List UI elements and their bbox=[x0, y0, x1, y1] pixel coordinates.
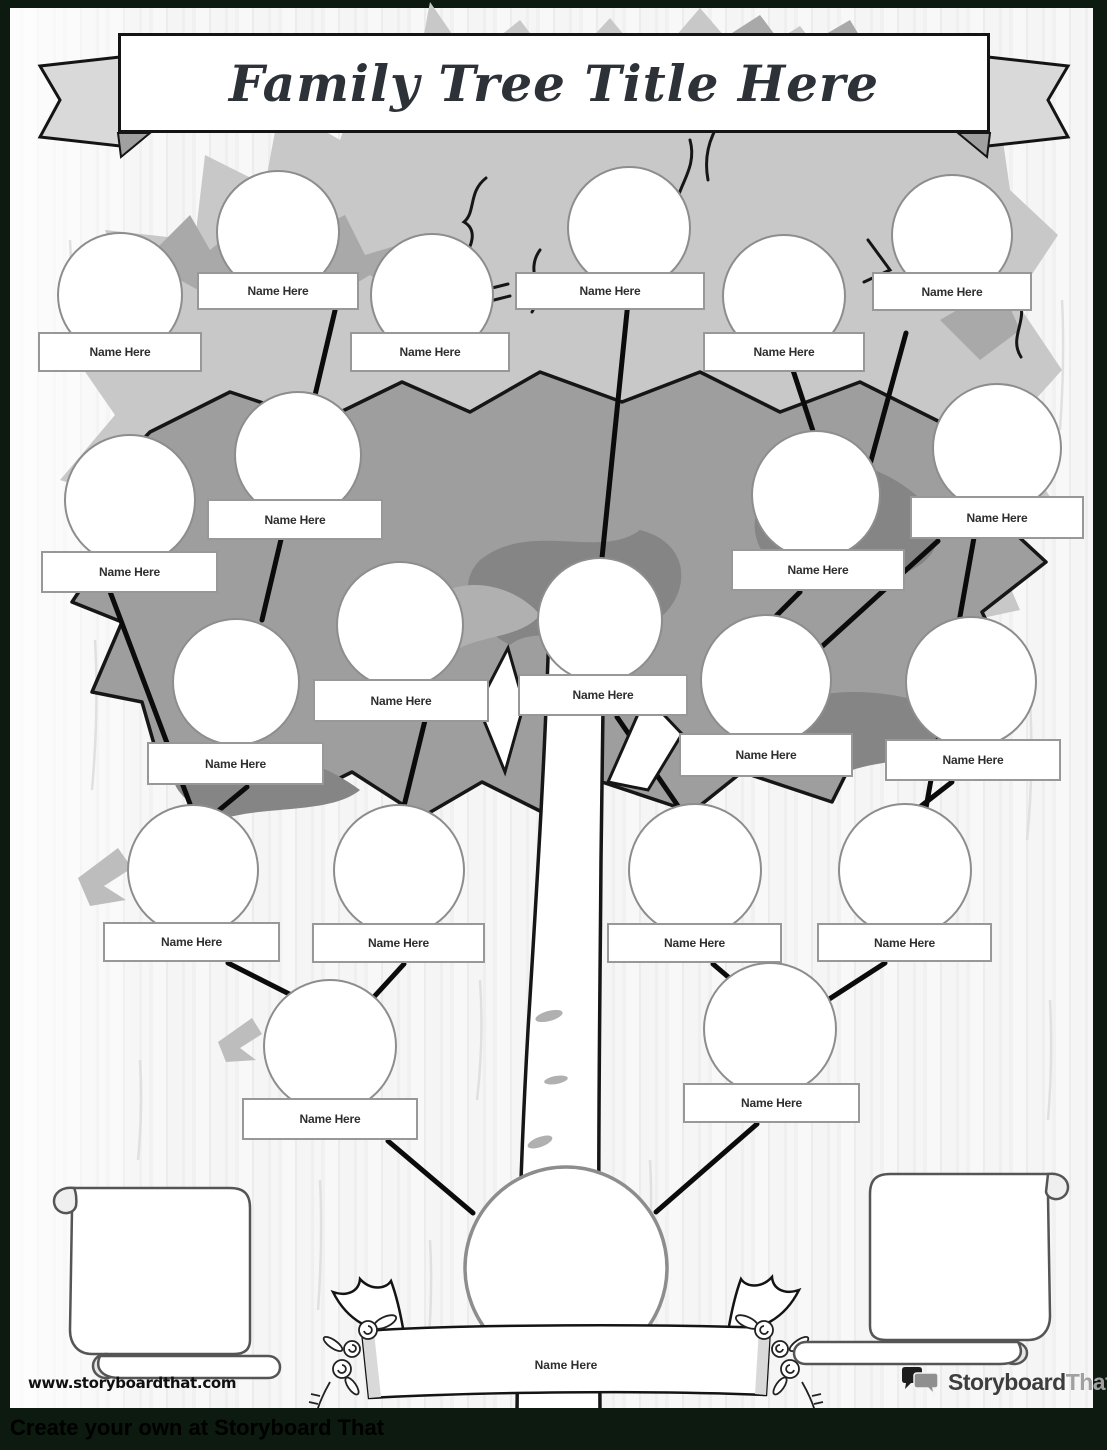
member-name-label[interactable]: Name Here bbox=[683, 1083, 860, 1123]
member-photo-circle[interactable] bbox=[64, 434, 196, 566]
member-name-label[interactable]: Name Here bbox=[872, 272, 1032, 311]
member-name-label[interactable]: Name Here bbox=[731, 549, 905, 591]
bottom-promo-text: Create your own at Storyboard That bbox=[10, 1415, 1107, 1441]
member-photo-circle[interactable] bbox=[537, 557, 663, 683]
member-photo-circle[interactable] bbox=[751, 430, 881, 560]
member-name-label[interactable]: Name Here bbox=[242, 1098, 418, 1140]
member-name-label[interactable]: Name Here bbox=[518, 674, 688, 716]
member-name-label[interactable]: Name Here bbox=[350, 332, 510, 372]
family-tree-poster: Name HereName HereName HereName HereName… bbox=[0, 0, 1107, 1450]
member-photo-circle[interactable] bbox=[838, 803, 972, 937]
storyboardthat-logo[interactable]: StoryboardThat bbox=[900, 1366, 1107, 1398]
logo-text-secondary: That bbox=[1066, 1369, 1107, 1395]
member-photo-circle[interactable] bbox=[932, 383, 1062, 513]
member-name-label[interactable]: Name Here bbox=[703, 332, 865, 372]
logo-text-primary: Storyboard bbox=[948, 1369, 1066, 1395]
member-name-label[interactable]: Name Here bbox=[885, 739, 1061, 781]
member-photo-circle[interactable] bbox=[263, 979, 397, 1113]
member-photo-circle[interactable] bbox=[333, 804, 465, 936]
member-name-label[interactable]: Name Here bbox=[817, 923, 992, 962]
member-name-label[interactable]: Name Here bbox=[207, 499, 383, 540]
member-name-label[interactable]: Name Here bbox=[103, 922, 280, 962]
member-name-label[interactable]: Name Here bbox=[38, 332, 202, 372]
bottom-promo-bar: Create your own at Storyboard That bbox=[0, 1408, 1107, 1450]
member-name-label[interactable]: Name Here bbox=[313, 679, 489, 722]
member-name-label[interactable]: Name Here bbox=[41, 551, 218, 593]
member-name-label[interactable]: Name Here bbox=[147, 742, 324, 785]
member-photo-circle[interactable] bbox=[628, 803, 762, 937]
member-name-label[interactable]: Name Here bbox=[515, 272, 705, 310]
root-name-label[interactable]: Name Here bbox=[373, 1346, 759, 1384]
blank-scroll-left[interactable] bbox=[54, 1188, 280, 1378]
member-name-label[interactable]: Name Here bbox=[312, 923, 485, 963]
speech-bubbles-icon bbox=[900, 1366, 942, 1398]
title-banner[interactable]: Family Tree Title Here bbox=[118, 33, 990, 133]
member-photo-circle[interactable] bbox=[703, 962, 837, 1096]
member-photo-circle[interactable] bbox=[336, 561, 464, 689]
member-photo-circle[interactable] bbox=[172, 618, 300, 746]
member-photo-circle[interactable] bbox=[905, 616, 1037, 748]
member-name-label[interactable]: Name Here bbox=[910, 496, 1084, 539]
member-name-label[interactable]: Name Here bbox=[679, 733, 853, 777]
member-name-label[interactable]: Name Here bbox=[197, 272, 359, 310]
page-title[interactable]: Family Tree Title Here bbox=[229, 54, 879, 113]
member-photo-circle[interactable] bbox=[127, 804, 259, 936]
website-url[interactable]: www.storyboardthat.com bbox=[28, 1374, 236, 1392]
blank-scroll-right[interactable] bbox=[794, 1174, 1068, 1364]
member-photo-circle[interactable] bbox=[700, 614, 832, 746]
member-name-label[interactable]: Name Here bbox=[607, 923, 782, 963]
